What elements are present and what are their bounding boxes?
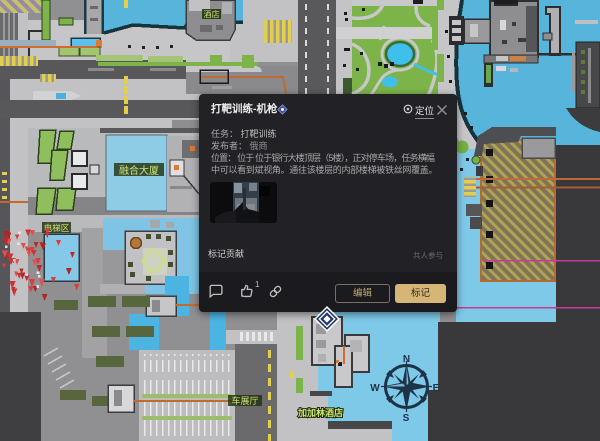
svg-text:车展厅: 车展厅: [231, 395, 258, 406]
svg-text:E: E: [433, 383, 440, 394]
svg-text:加加林酒店: 加加林酒店: [297, 407, 343, 418]
svg-text:N: N: [403, 354, 410, 365]
svg-text:W: W: [370, 383, 380, 394]
svg-text:S: S: [403, 413, 410, 424]
svg-text:酒店: 酒店: [204, 9, 220, 19]
svg-text:融合大厦: 融合大厦: [119, 164, 159, 177]
